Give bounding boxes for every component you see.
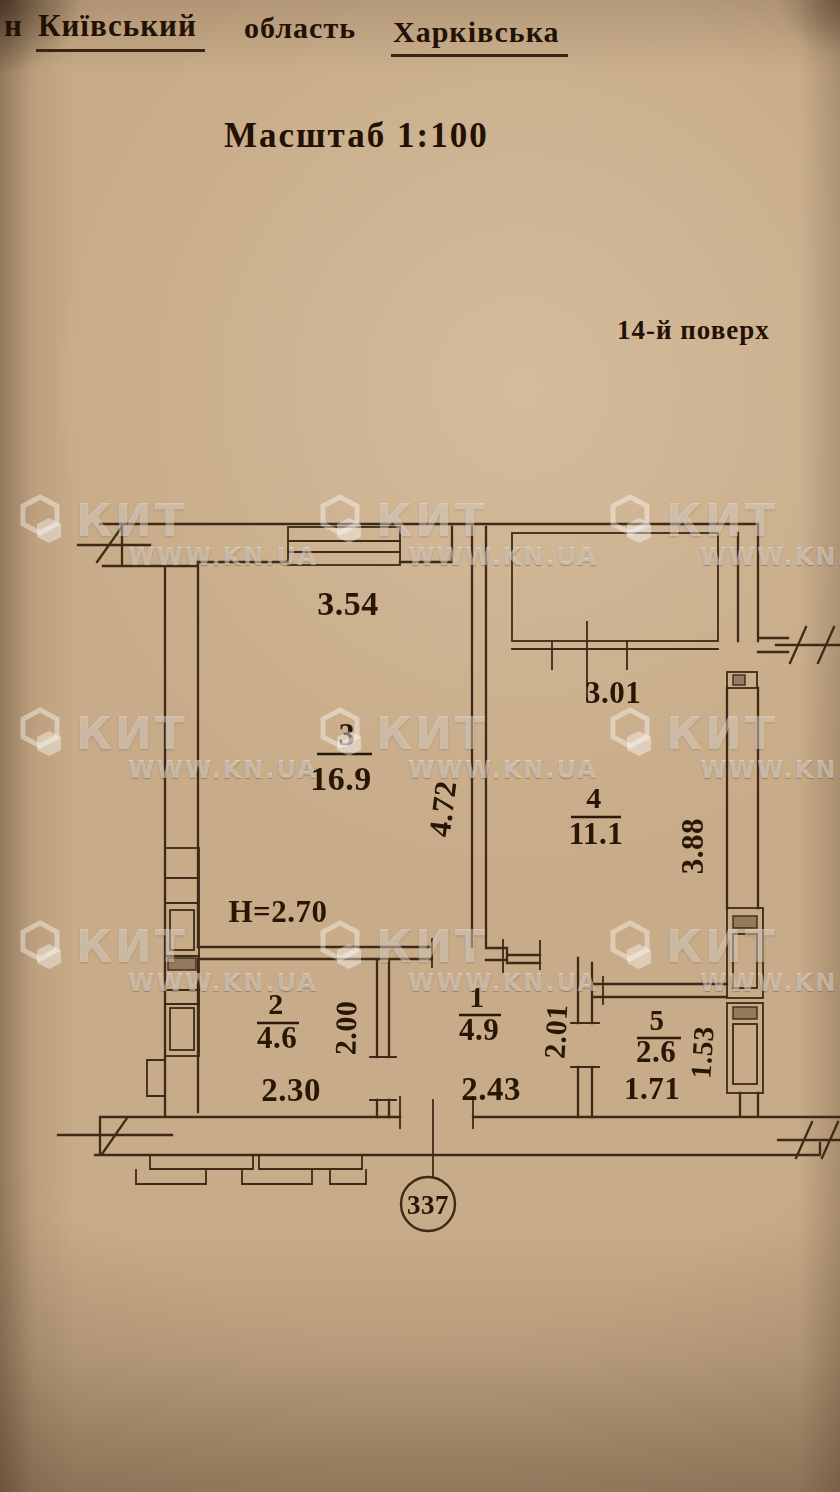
ceiling-height: Н=2.70	[228, 894, 327, 929]
balcony-outline	[512, 533, 757, 688]
room5-area: 2.6	[636, 1034, 676, 1069]
dim-room4-depth: 3.88	[675, 818, 710, 874]
dim-room3-width: 3.54	[317, 585, 379, 622]
room1-number: 1	[469, 980, 485, 1013]
dim-room2-width: 2.30	[261, 1072, 321, 1108]
room4-area: 11.1	[569, 816, 624, 851]
dim-room5-depth: 1.53	[684, 1025, 720, 1080]
exterior-walls	[95, 524, 840, 1155]
dim-room1-width: 2.43	[461, 1071, 521, 1107]
room5-number: 5	[650, 1004, 665, 1036]
room2-area: 4.6	[257, 1020, 297, 1055]
dim-room4-width: 3.01	[585, 675, 641, 710]
dim-room1-depth: 2.01	[538, 1003, 574, 1059]
apartment-number: 337	[407, 1190, 449, 1220]
room2-number: 2	[268, 987, 284, 1020]
room4-number: 4	[586, 781, 602, 814]
wall-break-marks	[58, 528, 840, 1158]
floor-plan: 337 3 16.9 4 11.1 2 4.6 1 4.9 5 2.6 3.54…	[0, 0, 840, 1492]
dim-room5-width: 1.71	[624, 1071, 680, 1106]
room3-area: 16.9	[310, 760, 372, 797]
window-right-wall-upper	[727, 908, 763, 998]
stairwell-outlines	[136, 1155, 366, 1184]
scanned-floor-plan-page: н Київський область Харківська Масштаб 1…	[0, 0, 840, 1492]
room1-area: 4.9	[459, 1012, 499, 1047]
window-right-wall-lower	[727, 1003, 763, 1093]
dim-room3-depth: 4.72	[422, 779, 464, 839]
room3-number: 3	[339, 716, 356, 752]
window-left-wall	[147, 848, 199, 1096]
window-room3-top	[288, 527, 400, 565]
dim-room2-depth: 2.00	[329, 1000, 363, 1055]
